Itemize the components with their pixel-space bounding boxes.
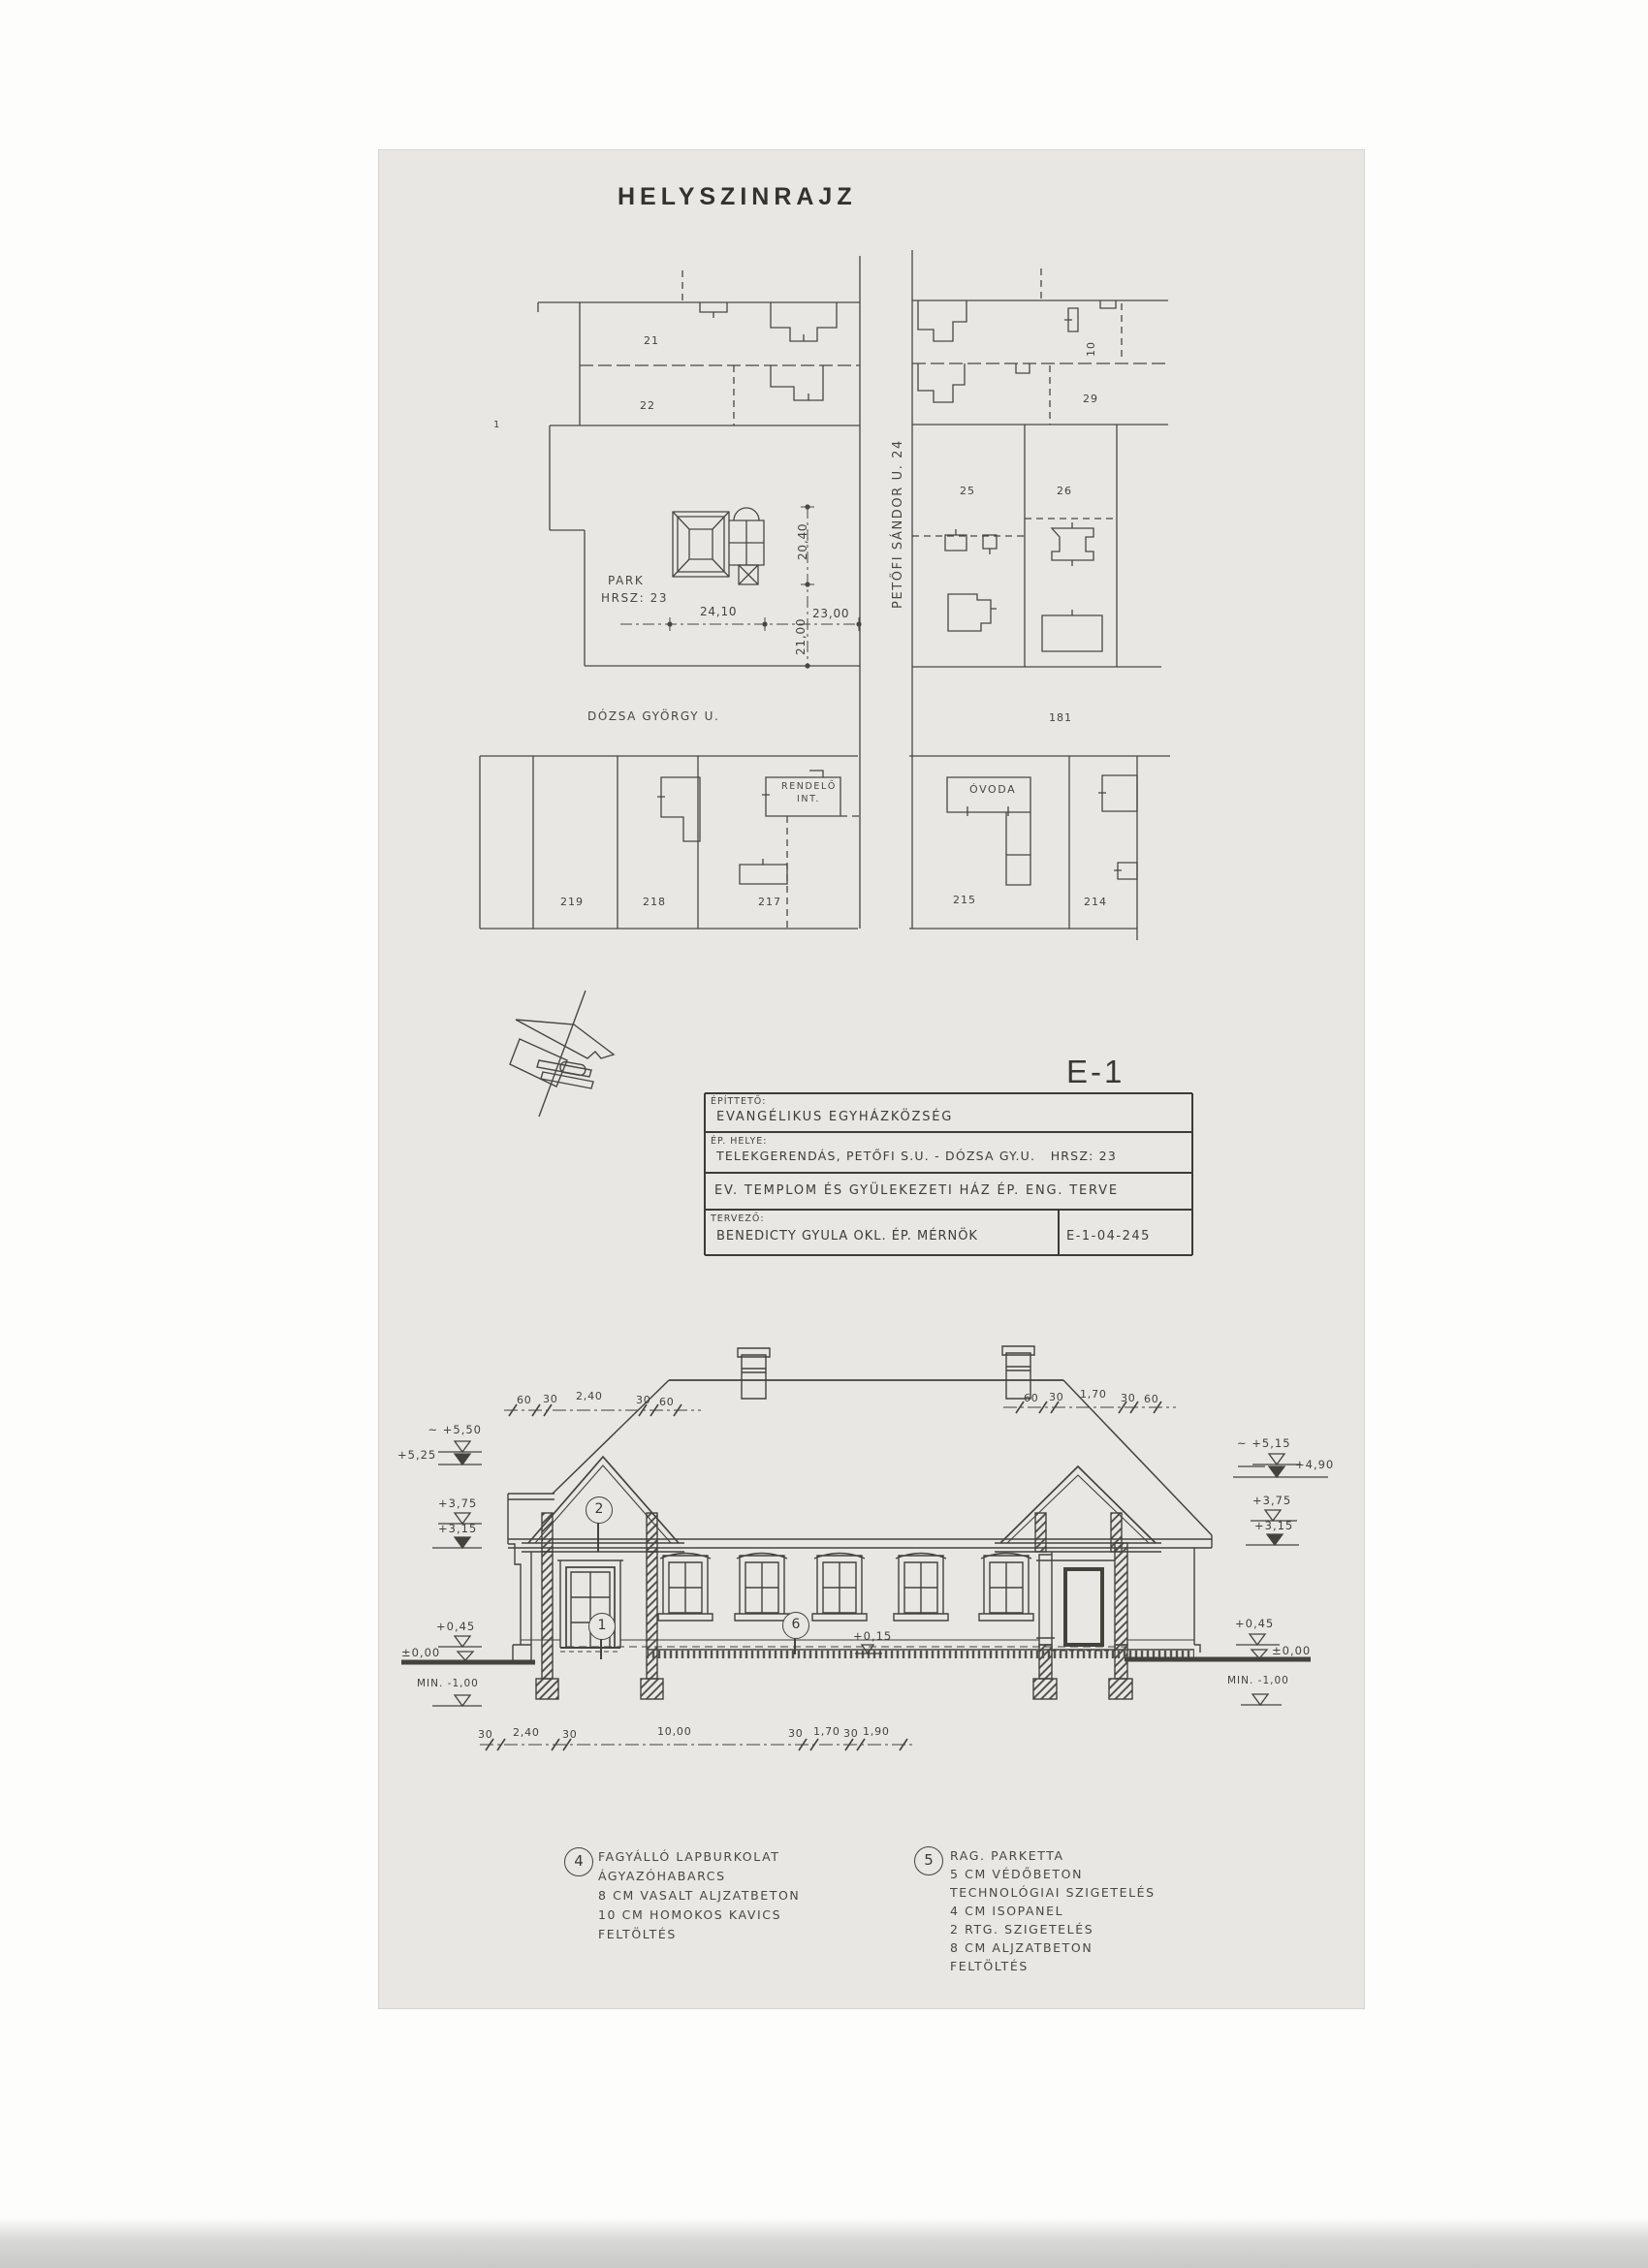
plot-label-218: 218 bbox=[643, 897, 666, 907]
dim-label: 2,40 bbox=[513, 1727, 540, 1738]
dim-label: 1,90 bbox=[863, 1726, 890, 1737]
dim-label: 1,70 bbox=[1080, 1389, 1107, 1400]
plot-label-10: 10 bbox=[1086, 341, 1096, 357]
level-marker: +3,75 bbox=[438, 1498, 477, 1510]
street-label-petofi: PETŐFI SÁNDOR U. 24 bbox=[892, 439, 904, 609]
titleblock-code: E-1-04-245 bbox=[1066, 1230, 1151, 1243]
park-label: PARK bbox=[608, 575, 644, 586]
level-marker: +0,45 bbox=[1235, 1619, 1274, 1630]
titleblock-site: TELEKGERENDÁS, PETŐFI S.U. - DÓZSA GY.U.… bbox=[716, 1150, 1117, 1163]
dim-label: 30 bbox=[788, 1728, 804, 1739]
plot-label-1: 1 bbox=[493, 421, 500, 430]
callout-1: 1 bbox=[588, 1613, 616, 1640]
dim-label: 30 bbox=[543, 1394, 558, 1404]
titleblock-project: EV. TEMPLOM ÉS GYÜLEKEZETI HÁZ ÉP. ENG. … bbox=[714, 1184, 1119, 1197]
plot-label-214: 214 bbox=[1084, 897, 1107, 907]
dim-label: 60 bbox=[1144, 1394, 1159, 1404]
street-label-dozsa: DÓZSA GYÖRGY U. bbox=[587, 710, 719, 722]
note-line: FAGYÁLLÓ LAPBURKOLAT bbox=[598, 1851, 780, 1864]
level-marker: +3,75 bbox=[1252, 1496, 1291, 1507]
floor-level-label: +0,15 bbox=[853, 1631, 892, 1643]
dim-label: 2,40 bbox=[576, 1391, 603, 1402]
building-label-ovoda: ÓVODA bbox=[969, 784, 1016, 795]
note-line: FELTÖLTÉS bbox=[950, 1961, 1029, 1973]
note-line: RAG. PARKETTA bbox=[950, 1850, 1064, 1863]
level-marker: +4,90 bbox=[1295, 1460, 1334, 1471]
note-line: 2 RTG. SZIGETELÉS bbox=[950, 1924, 1093, 1937]
note-line: FELTÖLTÉS bbox=[598, 1929, 677, 1941]
level-marker: +3,15 bbox=[438, 1524, 477, 1535]
note-line: TECHNOLÓGIAI SZIGETELÉS bbox=[950, 1887, 1156, 1900]
titleblock-client-label: ÉPÍTTETŐ: bbox=[711, 1097, 766, 1107]
titleblock-site-label: ÉP. HELYE: bbox=[711, 1137, 767, 1147]
note-line: 5 CM VÉDŐBETON bbox=[950, 1869, 1083, 1881]
building-label-rendelo-int: INT. bbox=[797, 795, 820, 804]
elevation-linework bbox=[401, 1346, 1311, 1699]
note-4-badge: 4 bbox=[564, 1847, 593, 1876]
drawing-number: E-1 bbox=[1066, 1055, 1125, 1087]
level-marker: +0,45 bbox=[436, 1622, 475, 1633]
site-dim-2300: 23,00 bbox=[812, 608, 849, 619]
scanned-drawing-page: HELYSZINRAJZ 1 21 22 10 29 25 26 219 218… bbox=[0, 0, 1648, 2268]
dim-label: 30 bbox=[478, 1729, 493, 1740]
plot-label-29: 29 bbox=[1083, 394, 1098, 404]
level-marker: MIN. -1,00 bbox=[417, 1679, 479, 1689]
north-arrow-icon bbox=[510, 991, 614, 1117]
plot-label-217: 217 bbox=[758, 897, 781, 907]
dim-label: 30 bbox=[636, 1395, 651, 1405]
plot-label-26: 26 bbox=[1057, 486, 1072, 496]
level-marker: +3,15 bbox=[1254, 1521, 1293, 1532]
page-title: HELYSZINRAJZ bbox=[618, 185, 857, 209]
dim-label: 30 bbox=[1049, 1392, 1064, 1402]
site-plan-linework bbox=[480, 250, 1170, 940]
dim-label: 30 bbox=[1121, 1393, 1136, 1403]
titleblock-designer: BENEDICTY GYULA OKL. ÉP. MÉRNÖK bbox=[716, 1230, 978, 1243]
block-number-181: 181 bbox=[1049, 712, 1072, 723]
level-marker: MIN. -1,00 bbox=[1227, 1676, 1289, 1686]
note-line: 10 CM HOMOKOS KAVICS bbox=[598, 1909, 781, 1922]
callout-2: 2 bbox=[586, 1496, 613, 1524]
note-line: 8 CM ALJZATBETON bbox=[950, 1942, 1093, 1955]
dim-label: 30 bbox=[562, 1729, 578, 1740]
dim-label: 60 bbox=[1024, 1393, 1039, 1403]
level-marker: +5,25 bbox=[397, 1450, 436, 1462]
dimension-chains bbox=[480, 1402, 1176, 1750]
site-dim-2410: 24,10 bbox=[700, 606, 737, 617]
park-parcel-label: HRSZ: 23 bbox=[601, 592, 668, 604]
plot-label-219: 219 bbox=[560, 897, 584, 907]
note-line: 4 CM ISOPANEL bbox=[950, 1906, 1063, 1918]
titleblock-designer-label: TERVEZŐ: bbox=[711, 1214, 765, 1224]
drawing-linework bbox=[0, 0, 1648, 2268]
level-marker: ~ +5,15 bbox=[1237, 1438, 1291, 1450]
plot-label-25: 25 bbox=[960, 486, 975, 496]
titleblock-client: EVANGÉLIKUS EGYHÁZKÖZSÉG bbox=[716, 1111, 953, 1123]
level-marker: ±0,00 bbox=[401, 1648, 440, 1659]
dim-label: 60 bbox=[659, 1397, 675, 1407]
note-line: ÁGYAZÓHABARCS bbox=[598, 1871, 726, 1883]
dim-label: 1,70 bbox=[813, 1726, 840, 1737]
note-5-badge: 5 bbox=[914, 1846, 943, 1875]
level-marker: ±0,00 bbox=[1272, 1646, 1311, 1657]
level-marker: ~ +5,50 bbox=[407, 1425, 482, 1436]
dim-label: 60 bbox=[517, 1395, 532, 1405]
site-dim-2040: 20,40 bbox=[797, 523, 808, 560]
plot-label-21: 21 bbox=[644, 335, 659, 346]
plot-label-22: 22 bbox=[640, 400, 655, 411]
callout-6: 6 bbox=[782, 1612, 809, 1639]
dim-label: 30 bbox=[843, 1728, 859, 1739]
building-label-rendelo: RENDELŐ bbox=[781, 782, 837, 792]
site-dim-2100: 21,00 bbox=[795, 618, 807, 655]
scanner-edge-band bbox=[0, 2218, 1648, 2268]
note-line: 8 CM VASALT ALJZATBETON bbox=[598, 1890, 800, 1903]
dim-label: 10,00 bbox=[657, 1726, 692, 1737]
plot-label-215: 215 bbox=[953, 895, 976, 905]
